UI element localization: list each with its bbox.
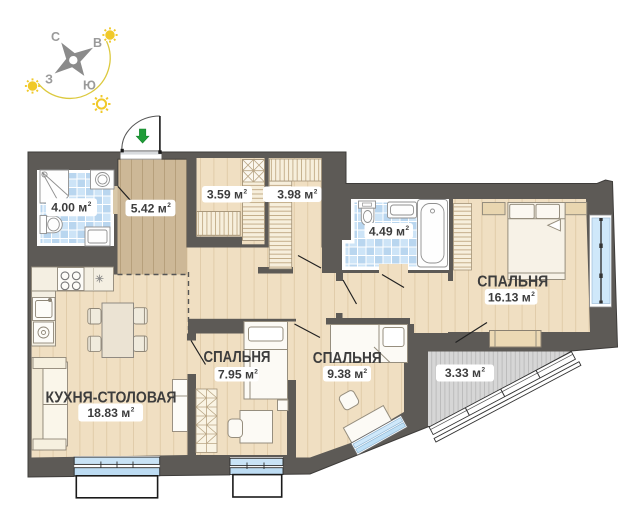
svg-text:З: З [45,73,53,87]
svg-text:2: 2 [131,407,135,414]
svg-text:4.00 м: 4.00 м [51,201,87,215]
svg-text:2: 2 [314,188,318,195]
svg-text:16.13 м: 16.13 м [488,290,531,304]
svg-text:4.49 м: 4.49 м [369,225,405,239]
svg-text:3.59 м: 3.59 м [207,188,243,202]
svg-text:2: 2 [364,368,368,375]
svg-text:18.83 м: 18.83 м [87,406,130,420]
svg-text:2: 2 [244,188,248,195]
svg-text:2: 2 [531,291,535,298]
svg-text:7.95 м: 7.95 м [218,368,254,382]
svg-text:9.38 м: 9.38 м [327,367,363,381]
svg-text:5.42 м: 5.42 м [131,202,167,216]
svg-text:СПАЛЬНЯ: СПАЛЬНЯ [204,349,271,366]
svg-text:3.98 м: 3.98 м [277,188,313,202]
svg-text:2: 2 [254,368,258,375]
svg-text:С: С [51,30,60,44]
svg-text:2: 2 [167,202,171,209]
svg-text:СПАЛЬНЯ: СПАЛЬНЯ [313,350,382,367]
svg-text:Ю: Ю [83,79,96,93]
svg-text:3.33 м: 3.33 м [445,366,481,380]
svg-text:2: 2 [88,201,92,208]
svg-text:2: 2 [406,225,410,232]
svg-text:СПАЛЬНЯ: СПАЛЬНЯ [477,273,548,290]
svg-text:2: 2 [482,367,486,374]
svg-text:В: В [93,36,102,50]
